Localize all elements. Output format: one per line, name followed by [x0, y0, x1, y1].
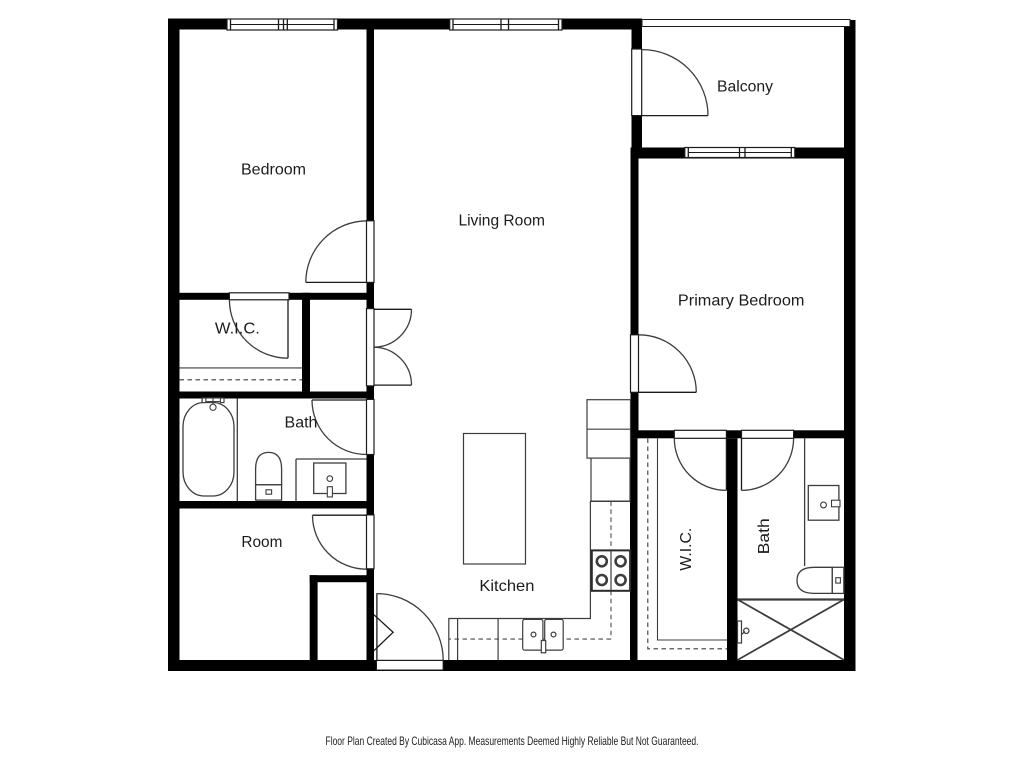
svg-text:Bath: Bath — [756, 518, 773, 554]
svg-text:Living Room: Living Room — [458, 213, 545, 230]
svg-text:Floor Plan Created By Cubicasa: Floor Plan Created By Cubicasa App. Meas… — [326, 735, 699, 748]
svg-text:Bath: Bath — [285, 415, 318, 432]
svg-text:W.I.C.: W.I.C. — [678, 528, 695, 571]
svg-text:Room: Room — [241, 534, 282, 551]
svg-text:Primary Bedroom: Primary Bedroom — [678, 293, 805, 310]
svg-text:Kitchen: Kitchen — [479, 578, 534, 595]
svg-text:W.I.C.: W.I.C. — [215, 321, 260, 338]
svg-text:Balcony: Balcony — [717, 79, 773, 96]
svg-text:Bedroom: Bedroom — [241, 162, 306, 179]
